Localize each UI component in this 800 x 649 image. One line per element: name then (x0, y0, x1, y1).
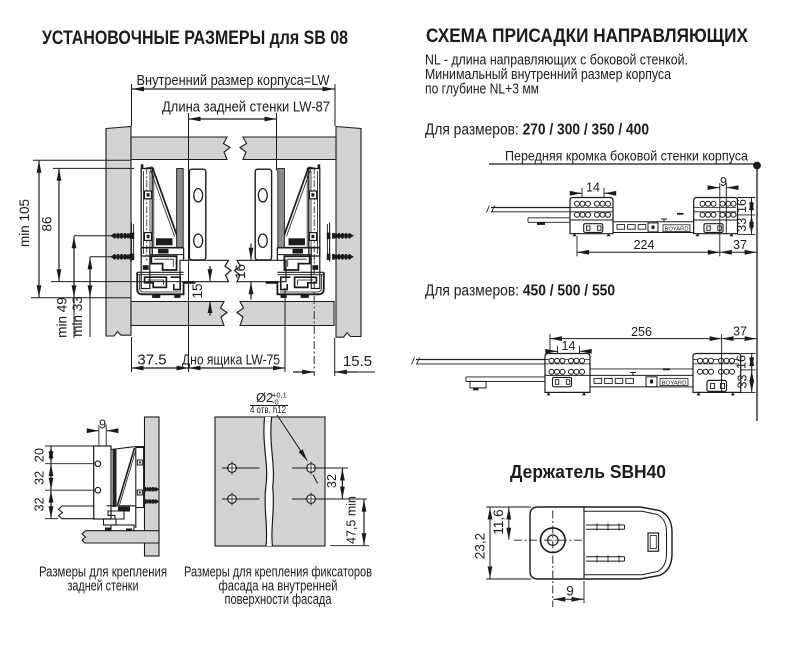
svg-text:BOYARD: BOYARD (665, 226, 689, 232)
svg-text:Держатель SBH40: Держатель SBH40 (510, 462, 666, 482)
svg-text:Передняя кромка боковой стенки: Передняя кромка боковой стенки корпуса (505, 148, 748, 164)
svg-text:СХЕМА ПРИСАДКИ НАПРАВЛЯЮЩИХ: СХЕМА ПРИСАДКИ НАПРАВЛЯЮЩИХ (426, 26, 748, 47)
svg-text:по глубине NL+3 мм: по глубине NL+3 мм (425, 81, 539, 98)
svg-text:16: 16 (735, 199, 749, 213)
svg-text:37.5: 37.5 (137, 352, 166, 369)
svg-text:min 33: min 33 (70, 296, 85, 337)
svg-text:Для размеров: 450 / 500 / 550: Для размеров: 450 / 500 / 550 (425, 283, 615, 300)
svg-text:Дно ящика LW-75: Дно ящика LW-75 (182, 352, 280, 369)
svg-text:14: 14 (562, 339, 576, 353)
svg-text:Внутренний размер корпуса=LW: Внутренний размер корпуса=LW (137, 72, 331, 89)
svg-text:поверхности фасада: поверхности фасада (225, 591, 332, 608)
svg-text:86: 86 (40, 216, 55, 231)
svg-text:14: 14 (586, 181, 600, 195)
svg-text:11,6: 11,6 (491, 509, 506, 534)
svg-text:15: 15 (190, 283, 205, 298)
svg-text:Длина задней стенки LW-87: Длина задней стенки LW-87 (162, 99, 330, 116)
svg-text:min 49: min 49 (55, 297, 70, 338)
svg-text:min 105: min 105 (17, 199, 32, 247)
svg-text:23,2: 23,2 (473, 533, 488, 559)
svg-text:47,5 min: 47,5 min (344, 496, 358, 544)
svg-text:Для размеров: 270 / 300 / 350: Для размеров: 270 / 300 / 350 / 400 (425, 122, 649, 139)
svg-text:16: 16 (233, 264, 248, 279)
svg-text:УСТАНОВОЧНЫЕ РАЗМЕРЫ для SB 08: УСТАНОВОЧНЫЕ РАЗМЕРЫ для SB 08 (42, 28, 348, 49)
svg-text:20: 20 (33, 448, 47, 462)
svg-text:9: 9 (99, 418, 106, 432)
svg-text:32: 32 (325, 474, 339, 488)
svg-text:32: 32 (33, 471, 47, 485)
svg-text:4 отв. h12: 4 отв. h12 (250, 404, 286, 416)
svg-text:Ø2: Ø2 (256, 390, 273, 405)
svg-text:33: 33 (735, 218, 749, 232)
svg-text:15.5: 15.5 (343, 353, 372, 370)
svg-text:16: 16 (735, 355, 749, 369)
svg-text:33: 33 (735, 375, 749, 389)
svg-text:BOYARD: BOYARD (662, 380, 687, 386)
svg-text:9: 9 (566, 584, 574, 599)
svg-text:задней стенки: задней стенки (68, 578, 139, 595)
svg-text:32: 32 (33, 497, 47, 511)
svg-text:37: 37 (733, 325, 747, 339)
svg-text:224: 224 (634, 238, 655, 252)
svg-text:256: 256 (631, 325, 652, 339)
svg-text:37: 37 (733, 238, 747, 252)
